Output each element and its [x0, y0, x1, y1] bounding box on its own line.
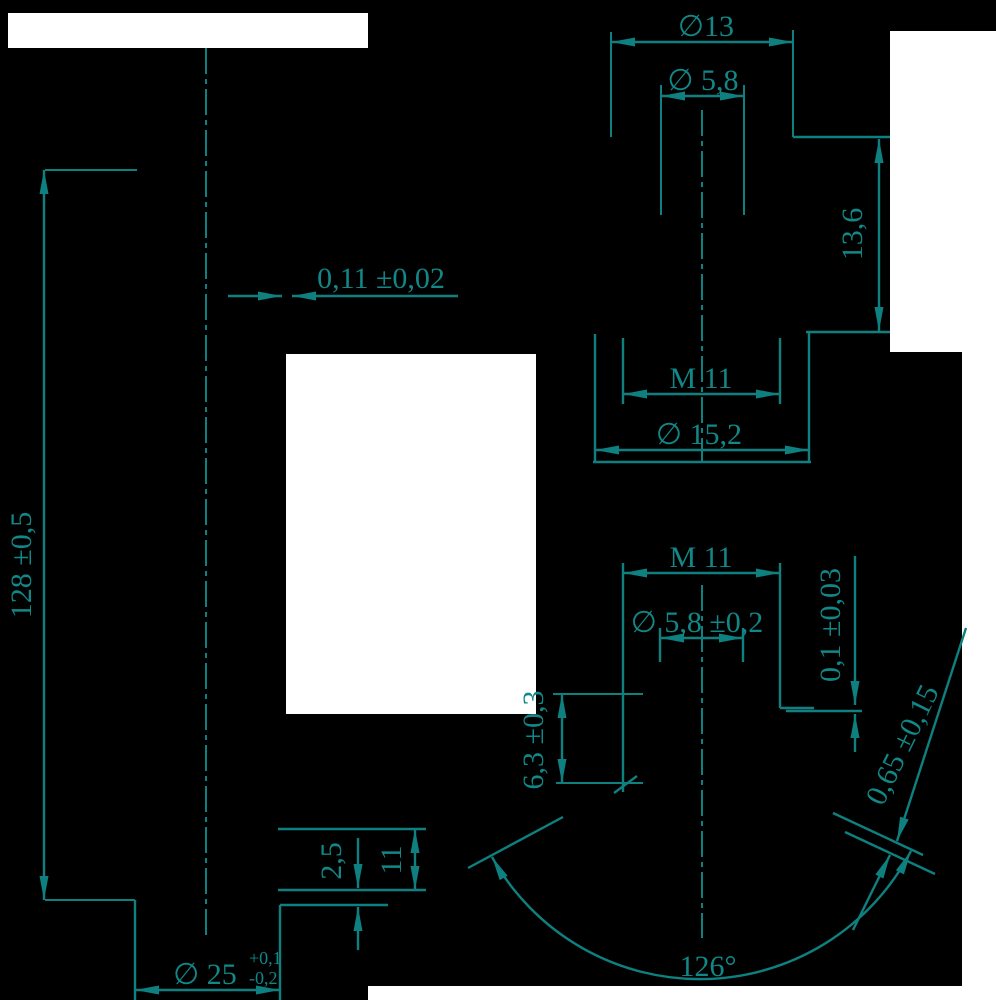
dim-13-6: 13,6	[836, 139, 879, 331]
dim-tolerance-plus: +0,1	[249, 948, 282, 968]
dim-label-0-65: 0,65 ±0,15	[859, 680, 945, 810]
dim-m11-top: M 11	[623, 362, 780, 395]
dim-label-13-6: 13,6	[836, 208, 869, 261]
dim-label-0-1: 0,1 ±0,03	[814, 568, 847, 682]
dim-label-6-3: 6,3 ±0,3	[517, 691, 550, 790]
dim-0-1: 0,1 ±0,03	[814, 556, 855, 752]
upper-part-edges	[593, 137, 890, 462]
oblique-tick	[614, 776, 637, 793]
dim-dia-5-8-tol: ∅ 5,8 ±0,2	[631, 606, 764, 639]
dim-label-dia-5-8-tol: ∅ 5,8 ±0,2	[631, 606, 764, 639]
dim-tolerance-minus: -0,2	[249, 968, 278, 988]
paper-patch-right-upper	[890, 31, 996, 352]
dim-label-m11-top: M 11	[669, 362, 732, 395]
paper-patch-bottom-strip	[368, 986, 962, 1000]
paper-patches	[8, 13, 996, 1000]
dim-label-dia-13: ∅13	[678, 10, 734, 43]
dimension-drawing: 128 ±0,5 0,11 ±0,02 2,5 11 ∅ 25 +0,1 -0,…	[0, 0, 996, 1000]
dim-dia-15-2: ∅ 15,2	[595, 418, 809, 451]
dim-0-11: 0,11 ±0,02	[228, 262, 458, 296]
dim-label-2-5: 2,5	[315, 842, 348, 880]
dim-label-dia-25: ∅ 25	[173, 958, 237, 991]
paper-patch-top	[8, 13, 368, 48]
dim-label-dia-5-8: ∅ 5,8	[667, 64, 738, 97]
paper-patch-center	[286, 354, 536, 714]
dim-2-5: 2,5	[315, 838, 358, 950]
dim-label-11: 11	[375, 846, 408, 875]
dim-label-m11-bottom: M 11	[669, 541, 732, 574]
paper-patch-right-strip	[962, 352, 996, 1000]
dim-126-deg: 126°	[468, 817, 911, 983]
dim-128: 128 ±0,5	[5, 170, 137, 900]
dim-dia-25: ∅ 25 +0,1 -0,2	[135, 948, 282, 991]
dim-label-128: 128 ±0,5	[5, 512, 38, 618]
dim-label-dia-15-2: ∅ 15,2	[656, 418, 742, 451]
dim-label-0-11: 0,11 ±0,02	[317, 262, 445, 295]
angle-leg	[468, 817, 563, 868]
technical-drawing-canvas: 128 ±0,5 0,11 ±0,02 2,5 11 ∅ 25 +0,1 -0,…	[0, 0, 996, 1000]
dim-11: 11	[375, 829, 415, 890]
dim-label-126: 126°	[680, 950, 737, 983]
dim-m11-bottom: M 11	[623, 541, 780, 574]
dim-0-65: 0,65 ±0,15	[833, 628, 966, 930]
